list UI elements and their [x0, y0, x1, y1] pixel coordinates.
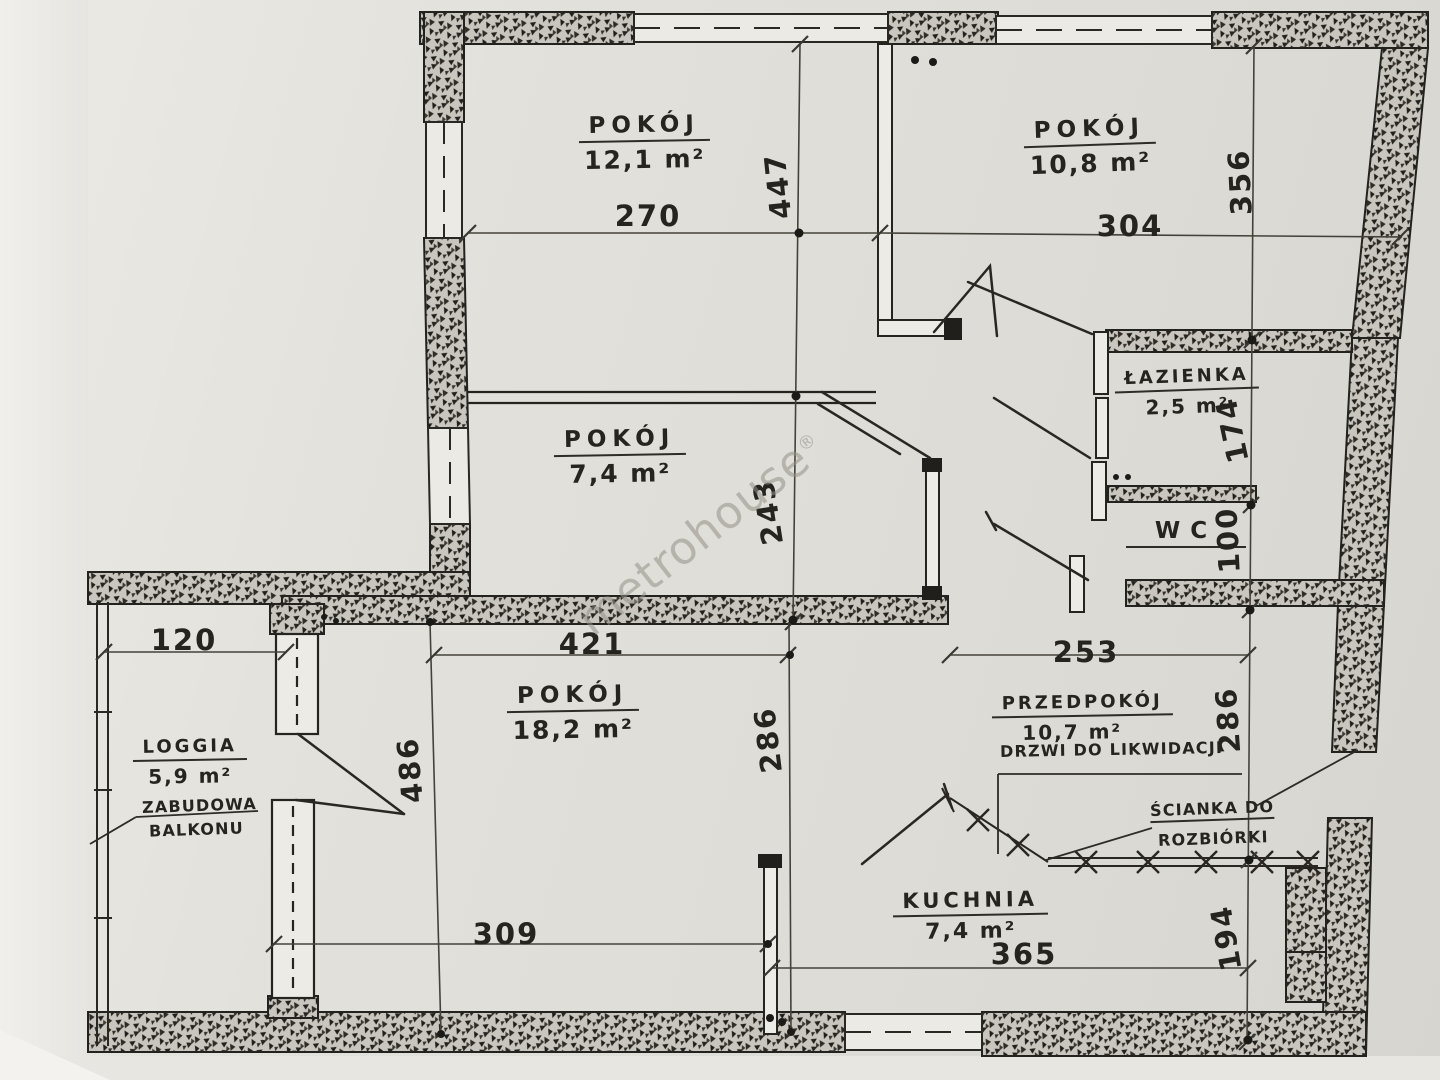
note-wall-demolition-line2: ROZBIÓRKI: [1158, 827, 1269, 850]
note-underlined-text: ŚCIANKA DO: [1150, 797, 1275, 823]
room-label-przedpokoj: PRZEDPOKÓJ 10,7 m²: [992, 691, 1153, 746]
dim-label-120: 120: [151, 623, 218, 657]
dim-label-100: 100: [1209, 506, 1246, 574]
loggia-glazing: [94, 602, 112, 1046]
note-balcony-line1: ZABUDOWA: [142, 794, 258, 817]
room-label-loggia: LOGGIA 5,9 m²: [120, 735, 261, 789]
dim-label-309: 309: [473, 917, 540, 951]
room-name: POKÓJ: [578, 111, 710, 143]
room-name: POKÓJ: [507, 681, 639, 713]
room-area: 12,1 m²: [557, 143, 732, 175]
room-name: KUCHNIA: [892, 887, 1048, 918]
room-area: 5,9 m²: [120, 763, 260, 789]
note-balcony-line2: BALKONU: [149, 818, 244, 840]
room-label-pokoj-74: POKÓJ 7,4 m²: [534, 425, 705, 490]
interior-walls: [764, 44, 1108, 1034]
room-name: PRZEDPOKÓJ: [992, 690, 1173, 718]
room-divider-wall: [468, 392, 876, 403]
dim-label-447: 447: [758, 151, 799, 221]
dim-label-253: 253: [1053, 635, 1120, 669]
room-name: ŁAZIENKA: [1114, 363, 1259, 393]
floor-plan: POKÓJ 12,1 m² POKÓJ 10,8 m² POKÓJ 7,4 m²…: [0, 0, 1440, 1080]
dim-label-365: 365: [991, 937, 1058, 971]
note-doors-removal: DRZWI DO LIKWIDACJI: [1000, 738, 1223, 761]
note-wall-demolition-line1: ŚCIANKA DO: [1150, 797, 1275, 820]
room-label-pokoj-182: POKÓJ 18,2 m²: [487, 681, 658, 746]
dim-label-270: 270: [615, 199, 682, 233]
room-label-pokoj-108: POKÓJ 10,8 m²: [999, 113, 1181, 181]
dim-label-356: 356: [1221, 148, 1258, 216]
room-label-pokoj-121: POKÓJ 12,1 m²: [556, 110, 732, 175]
room-name: LOGGIA: [132, 735, 247, 762]
room-area: 18,2 m²: [488, 714, 658, 746]
room-area: 7,4 m²: [535, 458, 705, 490]
room-name: POKÓJ: [554, 425, 686, 457]
dim-label-304: 304: [1097, 209, 1164, 243]
room-name: POKÓJ: [1023, 114, 1155, 149]
dim-label-486: 486: [390, 735, 430, 804]
